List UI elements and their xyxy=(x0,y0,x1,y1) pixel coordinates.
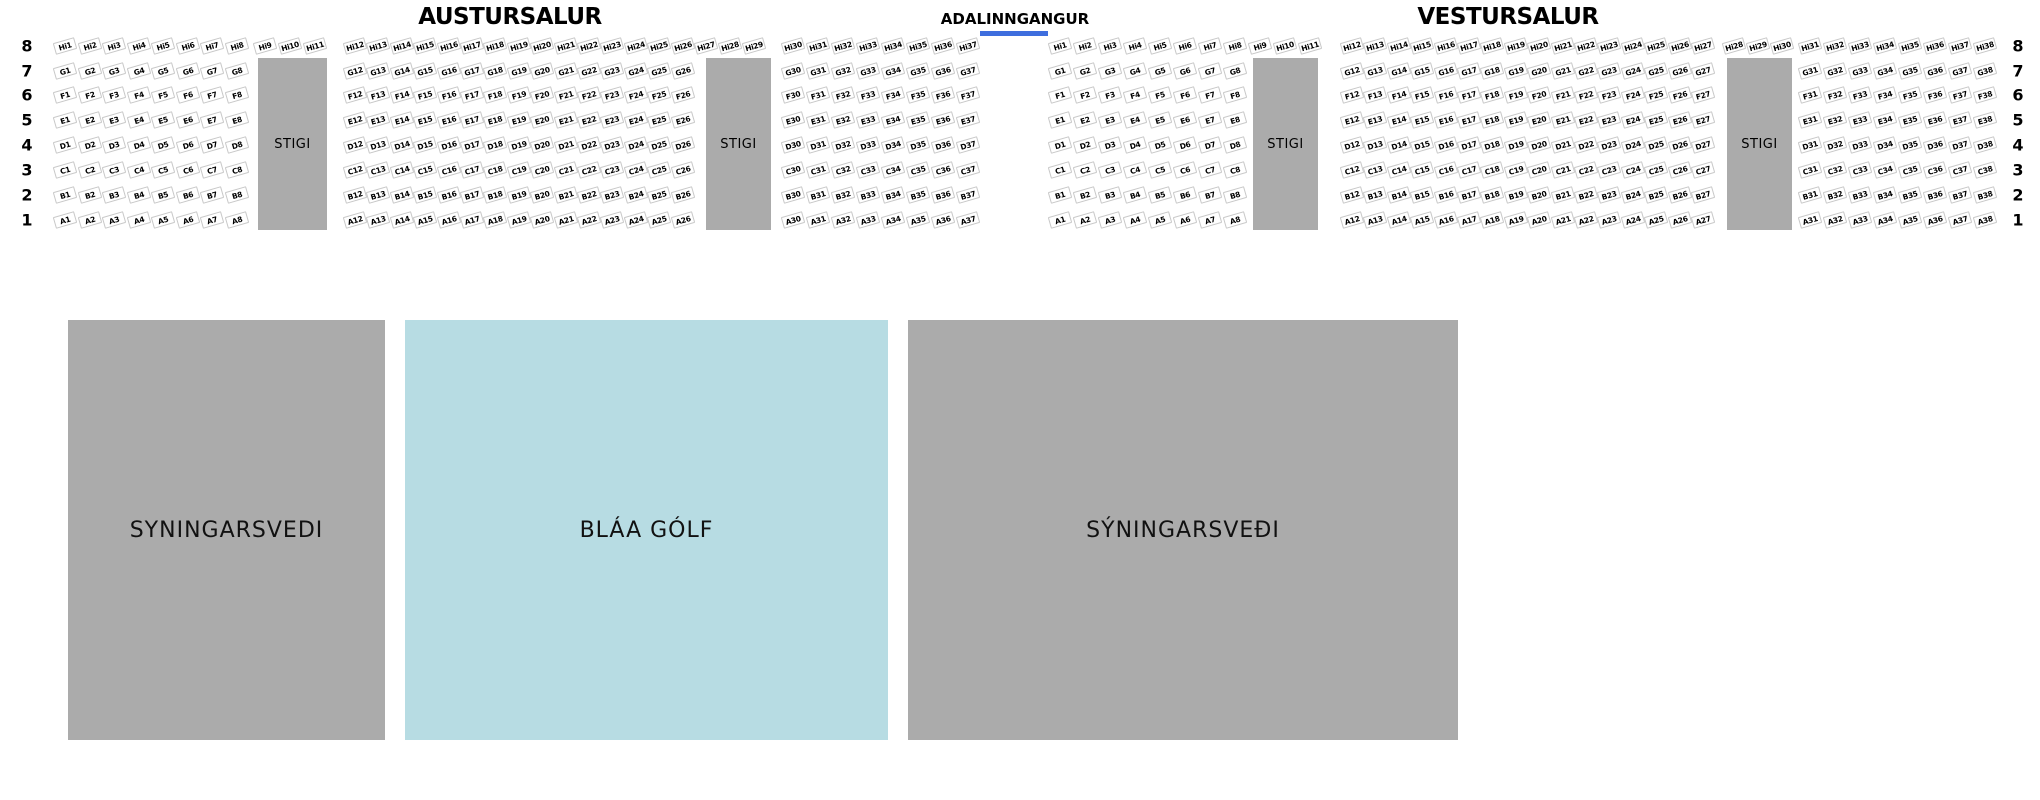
seat-G38[interactable]: G38 xyxy=(1973,62,1997,80)
seat-A36[interactable]: A36 xyxy=(931,211,955,229)
seat-F13[interactable]: F13 xyxy=(366,86,390,104)
seat-A36[interactable]: A36 xyxy=(1923,211,1947,229)
seat-E5[interactable]: E5 xyxy=(1148,111,1172,129)
seat-D36[interactable]: D36 xyxy=(931,136,955,154)
seat-E38[interactable]: E38 xyxy=(1973,111,1997,129)
seat-A30[interactable]: A30 xyxy=(781,211,805,229)
seat-G20[interactable]: G20 xyxy=(1527,62,1551,80)
seat-F16[interactable]: F16 xyxy=(1433,86,1457,104)
seat-D35[interactable]: D35 xyxy=(906,136,930,154)
seat-Hi5[interactable]: Hi5 xyxy=(151,37,175,55)
seat-B8[interactable]: B8 xyxy=(1223,186,1247,204)
seat-D4[interactable]: D4 xyxy=(1123,136,1147,154)
seat-A2[interactable]: A2 xyxy=(1073,211,1097,229)
seat-C4[interactable]: C4 xyxy=(1123,161,1147,179)
seat-B26[interactable]: B26 xyxy=(1667,186,1691,204)
seat-G14[interactable]: G14 xyxy=(390,62,414,80)
seat-C3[interactable]: C3 xyxy=(102,161,126,179)
seat-A23[interactable]: A23 xyxy=(1597,211,1621,229)
seat-E23[interactable]: E23 xyxy=(1597,111,1621,129)
seat-Hi37[interactable]: Hi37 xyxy=(956,37,980,55)
seat-Hi13[interactable]: Hi13 xyxy=(366,37,390,55)
seat-A16[interactable]: A16 xyxy=(436,211,460,229)
seat-Hi24[interactable]: Hi24 xyxy=(1621,37,1645,55)
seat-Hi6[interactable]: Hi6 xyxy=(1173,37,1197,55)
seat-G7[interactable]: G7 xyxy=(1198,62,1222,80)
seat-C14[interactable]: C14 xyxy=(390,161,414,179)
seat-Hi2[interactable]: Hi2 xyxy=(77,37,101,55)
seat-C17[interactable]: C17 xyxy=(460,161,484,179)
seat-B19[interactable]: B19 xyxy=(1504,186,1528,204)
seat-G26[interactable]: G26 xyxy=(670,62,694,80)
seat-Hi34[interactable]: Hi34 xyxy=(1873,37,1897,55)
seat-E25[interactable]: E25 xyxy=(1644,111,1668,129)
seat-G19[interactable]: G19 xyxy=(507,62,531,80)
seat-A38[interactable]: A38 xyxy=(1973,211,1997,229)
seat-B2[interactable]: B2 xyxy=(1073,186,1097,204)
seat-B21[interactable]: B21 xyxy=(1550,186,1574,204)
seat-G24[interactable]: G24 xyxy=(624,62,648,80)
seat-E19[interactable]: E19 xyxy=(1504,111,1528,129)
seat-A21[interactable]: A21 xyxy=(1550,211,1574,229)
seat-B20[interactable]: B20 xyxy=(530,186,554,204)
seat-Hi19[interactable]: Hi19 xyxy=(507,37,531,55)
seat-D32[interactable]: D32 xyxy=(1823,136,1847,154)
seat-B18[interactable]: B18 xyxy=(483,186,507,204)
seat-B31[interactable]: B31 xyxy=(1798,186,1822,204)
seat-E37[interactable]: E37 xyxy=(1948,111,1972,129)
seat-Hi37[interactable]: Hi37 xyxy=(1948,37,1972,55)
seat-G17[interactable]: G17 xyxy=(1457,62,1481,80)
seat-G31[interactable]: G31 xyxy=(806,62,830,80)
seat-C2[interactable]: C2 xyxy=(77,161,101,179)
seat-C37[interactable]: C37 xyxy=(1948,161,1972,179)
seat-E7[interactable]: E7 xyxy=(200,111,224,129)
seat-F22[interactable]: F22 xyxy=(577,86,601,104)
seat-F18[interactable]: F18 xyxy=(483,86,507,104)
seat-G36[interactable]: G36 xyxy=(931,62,955,80)
seat-B1[interactable]: B1 xyxy=(1048,186,1072,204)
seat-Hi3[interactable]: Hi3 xyxy=(1098,37,1122,55)
seat-C22[interactable]: C22 xyxy=(577,161,601,179)
seat-A7[interactable]: A7 xyxy=(200,211,224,229)
seat-Hi32[interactable]: Hi32 xyxy=(1823,37,1847,55)
seat-D18[interactable]: D18 xyxy=(483,136,507,154)
seat-A15[interactable]: A15 xyxy=(1410,211,1434,229)
seat-G31[interactable]: G31 xyxy=(1798,62,1822,80)
seat-D26[interactable]: D26 xyxy=(670,136,694,154)
seat-Hi25[interactable]: Hi25 xyxy=(647,37,671,55)
seat-C6[interactable]: C6 xyxy=(1173,161,1197,179)
seat-C8[interactable]: C8 xyxy=(1223,161,1247,179)
seat-F1[interactable]: F1 xyxy=(53,86,77,104)
seat-A19[interactable]: A19 xyxy=(1504,211,1528,229)
seat-A26[interactable]: A26 xyxy=(1667,211,1691,229)
seat-G6[interactable]: G6 xyxy=(175,62,199,80)
seat-A14[interactable]: A14 xyxy=(1387,211,1411,229)
seat-E34[interactable]: E34 xyxy=(1873,111,1897,129)
seat-A32[interactable]: A32 xyxy=(1823,211,1847,229)
seat-Hi4[interactable]: Hi4 xyxy=(1123,37,1147,55)
seat-G22[interactable]: G22 xyxy=(577,62,601,80)
seat-C25[interactable]: C25 xyxy=(1644,161,1668,179)
seat-G22[interactable]: G22 xyxy=(1574,62,1598,80)
seat-F8[interactable]: F8 xyxy=(1223,86,1247,104)
seat-F5[interactable]: F5 xyxy=(151,86,175,104)
seat-C36[interactable]: C36 xyxy=(931,161,955,179)
seat-F26[interactable]: F26 xyxy=(670,86,694,104)
seat-A13[interactable]: A13 xyxy=(1363,211,1387,229)
seat-C19[interactable]: C19 xyxy=(507,161,531,179)
seat-C13[interactable]: C13 xyxy=(366,161,390,179)
seat-E5[interactable]: E5 xyxy=(151,111,175,129)
seat-B5[interactable]: B5 xyxy=(1148,186,1172,204)
seat-B17[interactable]: B17 xyxy=(1457,186,1481,204)
seat-Hi28[interactable]: Hi28 xyxy=(718,37,742,55)
seat-E35[interactable]: E35 xyxy=(1898,111,1922,129)
seat-G5[interactable]: G5 xyxy=(1148,62,1172,80)
seat-Hi19[interactable]: Hi19 xyxy=(1504,37,1528,55)
seat-B12[interactable]: B12 xyxy=(343,186,367,204)
seat-Hi3[interactable]: Hi3 xyxy=(102,37,126,55)
seat-G33[interactable]: G33 xyxy=(1848,62,1872,80)
seat-C15[interactable]: C15 xyxy=(413,161,437,179)
seat-E4[interactable]: E4 xyxy=(1123,111,1147,129)
seat-Hi9[interactable]: Hi9 xyxy=(1248,37,1272,55)
seat-E33[interactable]: E33 xyxy=(1848,111,1872,129)
seat-A6[interactable]: A6 xyxy=(1173,211,1197,229)
seat-A27[interactable]: A27 xyxy=(1691,211,1715,229)
seat-G35[interactable]: G35 xyxy=(906,62,930,80)
seat-C1[interactable]: C1 xyxy=(1048,161,1072,179)
seat-B32[interactable]: B32 xyxy=(1823,186,1847,204)
seat-A34[interactable]: A34 xyxy=(881,211,905,229)
seat-A20[interactable]: A20 xyxy=(530,211,554,229)
seat-E6[interactable]: E6 xyxy=(175,111,199,129)
seat-Hi33[interactable]: Hi33 xyxy=(856,37,880,55)
seat-A2[interactable]: A2 xyxy=(77,211,101,229)
seat-D38[interactable]: D38 xyxy=(1973,136,1997,154)
seat-E20[interactable]: E20 xyxy=(1527,111,1551,129)
seat-B19[interactable]: B19 xyxy=(507,186,531,204)
seat-Hi35[interactable]: Hi35 xyxy=(1898,37,1922,55)
seat-D18[interactable]: D18 xyxy=(1480,136,1504,154)
seat-F31[interactable]: F31 xyxy=(1798,86,1822,104)
seat-F4[interactable]: F4 xyxy=(126,86,150,104)
seat-E17[interactable]: E17 xyxy=(1457,111,1481,129)
seat-B1[interactable]: B1 xyxy=(53,186,77,204)
seat-C26[interactable]: C26 xyxy=(1667,161,1691,179)
seat-B22[interactable]: B22 xyxy=(577,186,601,204)
seat-Hi34[interactable]: Hi34 xyxy=(881,37,905,55)
seat-E3[interactable]: E3 xyxy=(102,111,126,129)
seat-G3[interactable]: G3 xyxy=(1098,62,1122,80)
seat-A3[interactable]: A3 xyxy=(1098,211,1122,229)
seat-Hi4[interactable]: Hi4 xyxy=(126,37,150,55)
seat-Hi8[interactable]: Hi8 xyxy=(224,37,248,55)
seat-F4[interactable]: F4 xyxy=(1123,86,1147,104)
seat-B15[interactable]: B15 xyxy=(413,186,437,204)
seat-E18[interactable]: E18 xyxy=(1480,111,1504,129)
seat-E16[interactable]: E16 xyxy=(436,111,460,129)
seat-B25[interactable]: B25 xyxy=(647,186,671,204)
seat-E36[interactable]: E36 xyxy=(931,111,955,129)
seat-G25[interactable]: G25 xyxy=(1644,62,1668,80)
seat-D15[interactable]: D15 xyxy=(1410,136,1434,154)
seat-B21[interactable]: B21 xyxy=(553,186,577,204)
seat-E17[interactable]: E17 xyxy=(460,111,484,129)
seat-D7[interactable]: D7 xyxy=(1198,136,1222,154)
seat-D17[interactable]: D17 xyxy=(1457,136,1481,154)
seat-D5[interactable]: D5 xyxy=(1148,136,1172,154)
seat-E19[interactable]: E19 xyxy=(507,111,531,129)
seat-G18[interactable]: G18 xyxy=(1480,62,1504,80)
seat-B5[interactable]: B5 xyxy=(151,186,175,204)
seat-A12[interactable]: A12 xyxy=(1340,211,1364,229)
seat-B12[interactable]: B12 xyxy=(1340,186,1364,204)
seat-E21[interactable]: E21 xyxy=(1550,111,1574,129)
seat-A5[interactable]: A5 xyxy=(1148,211,1172,229)
seat-D8[interactable]: D8 xyxy=(1223,136,1247,154)
seat-D24[interactable]: D24 xyxy=(624,136,648,154)
seat-E15[interactable]: E15 xyxy=(413,111,437,129)
seat-C2[interactable]: C2 xyxy=(1073,161,1097,179)
seat-F17[interactable]: F17 xyxy=(1457,86,1481,104)
seat-A31[interactable]: A31 xyxy=(1798,211,1822,229)
seat-Hi1[interactable]: Hi1 xyxy=(1048,37,1072,55)
seat-A8[interactable]: A8 xyxy=(224,211,248,229)
seat-A33[interactable]: A33 xyxy=(1848,211,1872,229)
seat-D23[interactable]: D23 xyxy=(1597,136,1621,154)
seat-F7[interactable]: F7 xyxy=(200,86,224,104)
seat-D23[interactable]: D23 xyxy=(600,136,624,154)
seat-F26[interactable]: F26 xyxy=(1667,86,1691,104)
seat-Hi29[interactable]: Hi29 xyxy=(742,37,766,55)
seat-F12[interactable]: F12 xyxy=(343,86,367,104)
seat-G37[interactable]: G37 xyxy=(956,62,980,80)
seat-C5[interactable]: C5 xyxy=(1148,161,1172,179)
seat-D21[interactable]: D21 xyxy=(1550,136,1574,154)
seat-E32[interactable]: E32 xyxy=(831,111,855,129)
seat-F32[interactable]: F32 xyxy=(1823,86,1847,104)
seat-G21[interactable]: G21 xyxy=(553,62,577,80)
seat-F23[interactable]: F23 xyxy=(1597,86,1621,104)
seat-A3[interactable]: A3 xyxy=(102,211,126,229)
seat-D1[interactable]: D1 xyxy=(53,136,77,154)
seat-G24[interactable]: G24 xyxy=(1621,62,1645,80)
seat-C18[interactable]: C18 xyxy=(1480,161,1504,179)
seat-B4[interactable]: B4 xyxy=(1123,186,1147,204)
seat-D32[interactable]: D32 xyxy=(831,136,855,154)
seat-E23[interactable]: E23 xyxy=(600,111,624,129)
seat-Hi20[interactable]: Hi20 xyxy=(1527,37,1551,55)
seat-D33[interactable]: D33 xyxy=(1848,136,1872,154)
seat-Hi14[interactable]: Hi14 xyxy=(1387,37,1411,55)
seat-F8[interactable]: F8 xyxy=(224,86,248,104)
seat-A15[interactable]: A15 xyxy=(413,211,437,229)
seat-G12[interactable]: G12 xyxy=(1340,62,1364,80)
seat-D3[interactable]: D3 xyxy=(102,136,126,154)
seat-E2[interactable]: E2 xyxy=(77,111,101,129)
seat-A34[interactable]: A34 xyxy=(1873,211,1897,229)
seat-Hi12[interactable]: Hi12 xyxy=(1340,37,1364,55)
seat-E14[interactable]: E14 xyxy=(390,111,414,129)
seat-G12[interactable]: G12 xyxy=(343,62,367,80)
seat-C23[interactable]: C23 xyxy=(1597,161,1621,179)
seat-F36[interactable]: F36 xyxy=(1923,86,1947,104)
seat-D8[interactable]: D8 xyxy=(224,136,248,154)
seat-E16[interactable]: E16 xyxy=(1433,111,1457,129)
seat-G1[interactable]: G1 xyxy=(1048,62,1072,80)
seat-C25[interactable]: C25 xyxy=(647,161,671,179)
seat-F6[interactable]: F6 xyxy=(175,86,199,104)
seat-D2[interactable]: D2 xyxy=(1073,136,1097,154)
seat-Hi15[interactable]: Hi15 xyxy=(1410,37,1434,55)
seat-B34[interactable]: B34 xyxy=(881,186,905,204)
seat-G35[interactable]: G35 xyxy=(1898,62,1922,80)
seat-F14[interactable]: F14 xyxy=(1387,86,1411,104)
seat-A20[interactable]: A20 xyxy=(1527,211,1551,229)
seat-B13[interactable]: B13 xyxy=(366,186,390,204)
seat-D7[interactable]: D7 xyxy=(200,136,224,154)
seat-C33[interactable]: C33 xyxy=(1848,161,1872,179)
seat-E8[interactable]: E8 xyxy=(224,111,248,129)
seat-B33[interactable]: B33 xyxy=(1848,186,1872,204)
seat-Hi35[interactable]: Hi35 xyxy=(906,37,930,55)
seat-F25[interactable]: F25 xyxy=(647,86,671,104)
seat-F19[interactable]: F19 xyxy=(507,86,531,104)
seat-E27[interactable]: E27 xyxy=(1691,111,1715,129)
seat-F3[interactable]: F3 xyxy=(102,86,126,104)
seat-Hi8[interactable]: Hi8 xyxy=(1223,37,1247,55)
seat-G18[interactable]: G18 xyxy=(483,62,507,80)
seat-F15[interactable]: F15 xyxy=(1410,86,1434,104)
seat-C18[interactable]: C18 xyxy=(483,161,507,179)
seat-B3[interactable]: B3 xyxy=(1098,186,1122,204)
seat-Hi36[interactable]: Hi36 xyxy=(1923,37,1947,55)
seat-C32[interactable]: C32 xyxy=(831,161,855,179)
seat-F33[interactable]: F33 xyxy=(1848,86,1872,104)
seat-A24[interactable]: A24 xyxy=(624,211,648,229)
seat-D15[interactable]: D15 xyxy=(413,136,437,154)
seat-B31[interactable]: B31 xyxy=(806,186,830,204)
seat-Hi2[interactable]: Hi2 xyxy=(1073,37,1097,55)
seat-Hi28[interactable]: Hi28 xyxy=(1722,37,1746,55)
seat-Hi11[interactable]: Hi11 xyxy=(303,37,327,55)
seat-A16[interactable]: A16 xyxy=(1433,211,1457,229)
seat-G23[interactable]: G23 xyxy=(600,62,624,80)
seat-B6[interactable]: B6 xyxy=(175,186,199,204)
seat-E1[interactable]: E1 xyxy=(1048,111,1072,129)
seat-F22[interactable]: F22 xyxy=(1574,86,1598,104)
seat-C13[interactable]: C13 xyxy=(1363,161,1387,179)
seat-D26[interactable]: D26 xyxy=(1667,136,1691,154)
seat-F1[interactable]: F1 xyxy=(1048,86,1072,104)
seat-D24[interactable]: D24 xyxy=(1621,136,1645,154)
seat-E20[interactable]: E20 xyxy=(530,111,554,129)
seat-A18[interactable]: A18 xyxy=(483,211,507,229)
seat-D12[interactable]: D12 xyxy=(343,136,367,154)
seat-A25[interactable]: A25 xyxy=(1644,211,1668,229)
seat-D5[interactable]: D5 xyxy=(151,136,175,154)
seat-G17[interactable]: G17 xyxy=(460,62,484,80)
seat-G15[interactable]: G15 xyxy=(1410,62,1434,80)
seat-E8[interactable]: E8 xyxy=(1223,111,1247,129)
seat-C8[interactable]: C8 xyxy=(224,161,248,179)
seat-C15[interactable]: C15 xyxy=(1410,161,1434,179)
seat-C21[interactable]: C21 xyxy=(553,161,577,179)
seat-Hi16[interactable]: Hi16 xyxy=(436,37,460,55)
seat-A1[interactable]: A1 xyxy=(53,211,77,229)
seat-C20[interactable]: C20 xyxy=(1527,161,1551,179)
seat-E34[interactable]: E34 xyxy=(881,111,905,129)
seat-G30[interactable]: G30 xyxy=(781,62,805,80)
seat-Hi11[interactable]: Hi11 xyxy=(1298,37,1322,55)
seat-E24[interactable]: E24 xyxy=(1621,111,1645,129)
seat-E12[interactable]: E12 xyxy=(343,111,367,129)
seat-F34[interactable]: F34 xyxy=(1873,86,1897,104)
seat-C26[interactable]: C26 xyxy=(670,161,694,179)
seat-Hi27[interactable]: Hi27 xyxy=(1691,37,1715,55)
seat-D14[interactable]: D14 xyxy=(1387,136,1411,154)
seat-G2[interactable]: G2 xyxy=(77,62,101,80)
seat-F20[interactable]: F20 xyxy=(530,86,554,104)
seat-C4[interactable]: C4 xyxy=(126,161,150,179)
seat-F30[interactable]: F30 xyxy=(781,86,805,104)
seat-F21[interactable]: F21 xyxy=(553,86,577,104)
seat-B34[interactable]: B34 xyxy=(1873,186,1897,204)
seat-F36[interactable]: F36 xyxy=(931,86,955,104)
seat-D34[interactable]: D34 xyxy=(881,136,905,154)
seat-D13[interactable]: D13 xyxy=(1363,136,1387,154)
seat-G1[interactable]: G1 xyxy=(53,62,77,80)
seat-A22[interactable]: A22 xyxy=(577,211,601,229)
seat-F38[interactable]: F38 xyxy=(1973,86,1997,104)
seat-B37[interactable]: B37 xyxy=(956,186,980,204)
seat-C19[interactable]: C19 xyxy=(1504,161,1528,179)
seat-D37[interactable]: D37 xyxy=(956,136,980,154)
seat-F17[interactable]: F17 xyxy=(460,86,484,104)
seat-D17[interactable]: D17 xyxy=(460,136,484,154)
seat-C38[interactable]: C38 xyxy=(1973,161,1997,179)
seat-D22[interactable]: D22 xyxy=(577,136,601,154)
seat-Hi16[interactable]: Hi16 xyxy=(1433,37,1457,55)
seat-A31[interactable]: A31 xyxy=(806,211,830,229)
seat-D19[interactable]: D19 xyxy=(1504,136,1528,154)
seat-F37[interactable]: F37 xyxy=(1948,86,1972,104)
seat-Hi24[interactable]: Hi24 xyxy=(624,37,648,55)
seat-B7[interactable]: B7 xyxy=(200,186,224,204)
seat-D25[interactable]: D25 xyxy=(1644,136,1668,154)
seat-A25[interactable]: A25 xyxy=(647,211,671,229)
seat-F35[interactable]: F35 xyxy=(1898,86,1922,104)
seat-B3[interactable]: B3 xyxy=(102,186,126,204)
seat-C3[interactable]: C3 xyxy=(1098,161,1122,179)
seat-Hi30[interactable]: Hi30 xyxy=(781,37,805,55)
blue-floor-area[interactable]: BLÁA GÓLF xyxy=(405,320,888,740)
seat-G8[interactable]: G8 xyxy=(224,62,248,80)
seat-E25[interactable]: E25 xyxy=(647,111,671,129)
seat-B23[interactable]: B23 xyxy=(1597,186,1621,204)
seat-F5[interactable]: F5 xyxy=(1148,86,1172,104)
seat-A17[interactable]: A17 xyxy=(460,211,484,229)
seat-D6[interactable]: D6 xyxy=(175,136,199,154)
seat-D4[interactable]: D4 xyxy=(126,136,150,154)
seat-A32[interactable]: A32 xyxy=(831,211,855,229)
seat-E12[interactable]: E12 xyxy=(1340,111,1364,129)
seat-A37[interactable]: A37 xyxy=(956,211,980,229)
seat-Hi31[interactable]: Hi31 xyxy=(1798,37,1822,55)
